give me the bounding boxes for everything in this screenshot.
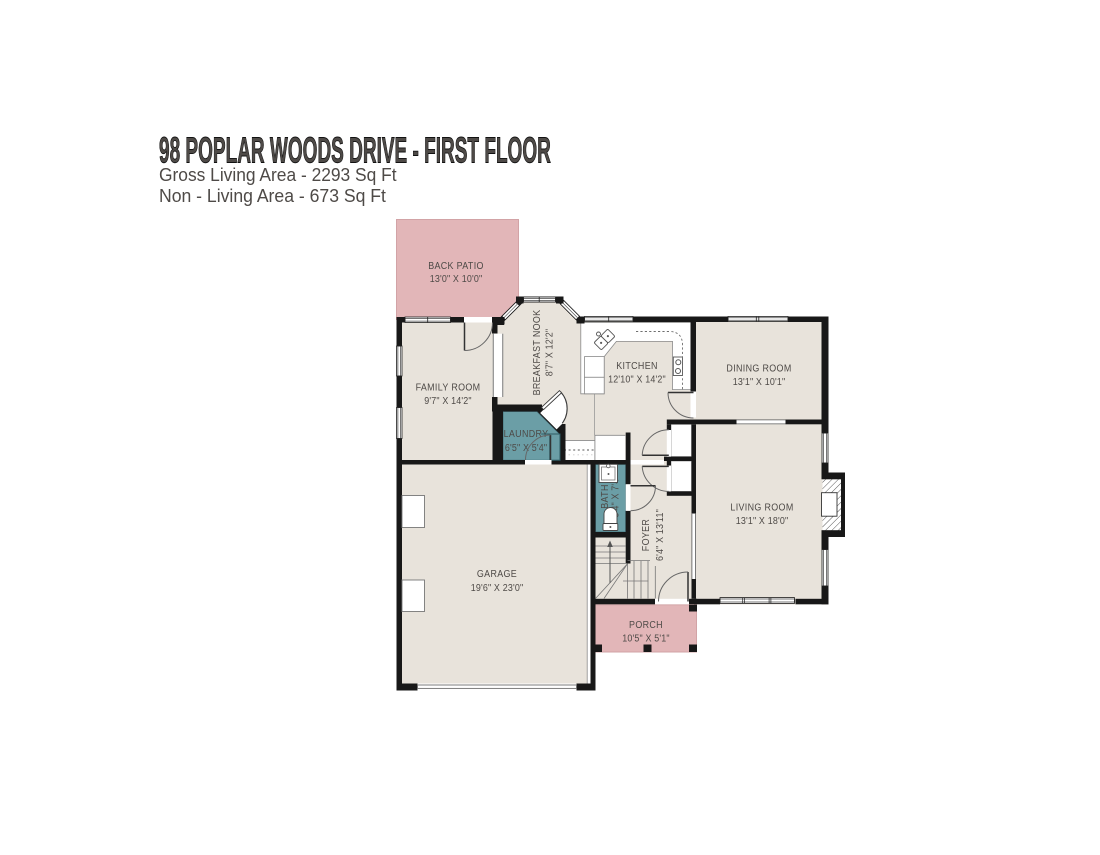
svg-text:BREAKFAST NOOK: BREAKFAST NOOK [531, 309, 543, 395]
svg-text:DINING ROOM: DINING ROOM [726, 363, 791, 375]
svg-text:GARAGE: GARAGE [477, 568, 517, 580]
svg-text:FOYER: FOYER [640, 519, 652, 551]
svg-text:13'0" X 10'0": 13'0" X 10'0" [430, 273, 483, 285]
svg-text:BACK PATIO: BACK PATIO [428, 260, 484, 272]
svg-text:PORCH: PORCH [629, 619, 663, 631]
svg-text:9'7" X 14'2": 9'7" X 14'2" [424, 395, 472, 407]
svg-text:19'6" X 23'0": 19'6" X 23'0" [471, 582, 524, 594]
svg-text:8'7" X 12'2": 8'7" X 12'2" [544, 328, 556, 376]
svg-text:LIVING ROOM: LIVING ROOM [730, 502, 793, 514]
svg-text:12'10" X 14'2": 12'10" X 14'2" [608, 374, 666, 386]
svg-text:10'5" X 5'1": 10'5" X 5'1" [622, 633, 670, 645]
svg-text:13'1" X 18'0": 13'1" X 18'0" [736, 515, 789, 527]
svg-text:13'1" X 10'1": 13'1" X 10'1" [733, 376, 786, 388]
svg-text:6'4" X 13'11": 6'4" X 13'11" [654, 509, 666, 561]
svg-text:Non - Living Area - 673 Sq Ft: Non - Living Area - 673 Sq Ft [159, 186, 386, 206]
svg-text:KITCHEN: KITCHEN [616, 360, 658, 372]
svg-text:Gross Living Area - 2293 Sq Ft: Gross Living Area - 2293 Sq Ft [159, 165, 397, 186]
svg-text:FAMILY ROOM: FAMILY ROOM [416, 382, 481, 394]
